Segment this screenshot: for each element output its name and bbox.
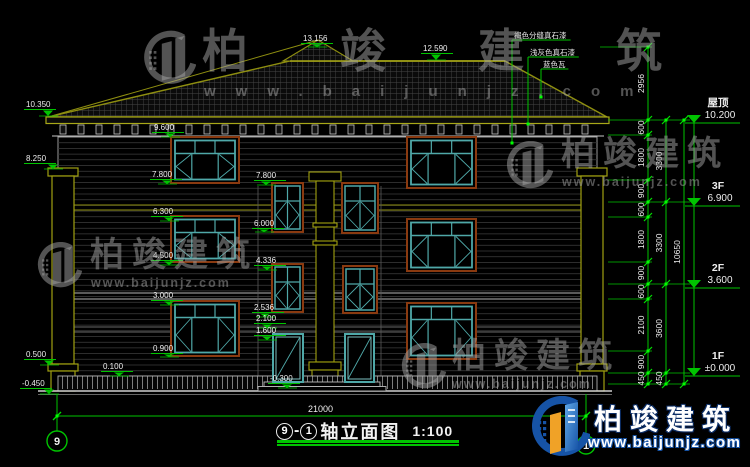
corner-logo-url: www.baijunjz.com <box>588 434 741 451</box>
entrance-door <box>345 334 374 382</box>
window <box>171 301 239 356</box>
dentil <box>132 125 138 134</box>
elevation-value: 0.900 <box>153 344 174 353</box>
window <box>272 183 303 232</box>
dentil <box>456 125 462 134</box>
dentil <box>258 125 264 134</box>
dentil <box>510 125 516 134</box>
dim-grip-icon <box>647 179 650 182</box>
elevation-value: 12.590 <box>423 44 448 53</box>
leader-dot-icon <box>527 123 530 126</box>
dentil <box>114 125 120 134</box>
flag-triangle-icon <box>687 368 701 376</box>
dim-value: 1800 <box>636 230 646 249</box>
dim-value: 450 <box>636 371 646 385</box>
dentil <box>312 125 318 134</box>
elevation-value: 7.800 <box>256 171 277 180</box>
dentil <box>330 125 336 134</box>
elevation-value: -0.450 <box>22 379 45 388</box>
elevation-value: 6.000 <box>254 219 275 228</box>
dentil <box>420 125 426 134</box>
level-flag: 1F±0.000 <box>685 350 740 376</box>
dim-value: 450 <box>654 371 664 385</box>
elevation-value: 9.600 <box>154 123 175 132</box>
window-surround <box>171 301 239 356</box>
dim-grip-icon <box>647 283 650 286</box>
window-surround <box>407 219 476 271</box>
dentil <box>96 125 102 134</box>
floor-label: 屋顶 <box>708 97 729 109</box>
elevation-value: 1.600 <box>256 326 277 335</box>
title-underline-2 <box>277 444 459 446</box>
elevation-marker: 12.590 <box>421 44 453 60</box>
floor-label: 2F <box>712 262 725 274</box>
dim-grip-icon <box>665 119 668 122</box>
elevation-value: 2.536 <box>254 303 275 312</box>
dim-value: 2956 <box>636 74 646 93</box>
level-flag: 2F3.600 <box>685 262 740 288</box>
elevation-value: 6.300 <box>153 207 174 216</box>
axis-circle-start: 9 <box>276 423 293 440</box>
marker-triangle-icon <box>43 111 53 117</box>
dim-grip-icon <box>665 283 668 286</box>
dentil <box>204 125 210 134</box>
window <box>272 264 303 312</box>
elevation-marker: 13.156 <box>301 34 333 47</box>
elevation-marker: 9.600 <box>152 123 184 137</box>
dentil <box>384 125 390 134</box>
dim-grip-icon <box>647 298 650 301</box>
elevation-marker: 8.250 <box>24 154 63 169</box>
dentil <box>564 125 570 134</box>
dentil <box>222 125 228 134</box>
elevation-value: 4.336 <box>256 256 277 265</box>
corner-logo: 柏竣建筑 www.baijunjz.com <box>530 394 750 464</box>
dim-grip-icon <box>683 383 686 386</box>
roof <box>48 40 607 117</box>
dim-value: 1800 <box>636 148 646 167</box>
axis-circle-end: 1 <box>300 423 317 440</box>
level-flag: 屋顶10.200 <box>685 97 740 123</box>
elevation-value: 13.156 <box>303 34 328 43</box>
window <box>342 183 378 233</box>
dentil <box>438 125 444 134</box>
dim-value: 900 <box>636 184 646 198</box>
dim-grip-icon <box>647 372 650 375</box>
leader-dot-icon <box>511 142 514 145</box>
window <box>171 137 239 183</box>
window-surround <box>171 137 239 183</box>
elevation-value: 10.350 <box>26 100 51 109</box>
elevation-value: 2.100 <box>256 314 277 323</box>
dim-grip-icon <box>665 372 668 375</box>
axis-number: 9 <box>54 436 60 448</box>
level-value: ±0.000 <box>705 363 736 374</box>
baijun-logo-icon <box>530 396 590 462</box>
dentil <box>276 125 282 134</box>
dim-value: 3300 <box>654 151 664 170</box>
elevation-value: 3.000 <box>153 291 174 300</box>
elevation-value: 0.100 <box>103 362 124 371</box>
dim-grip-icon <box>647 46 650 49</box>
dentil <box>240 125 246 134</box>
dentil <box>294 125 300 134</box>
dim-grip-icon <box>647 383 650 386</box>
dentil <box>348 125 354 134</box>
dim-value: 900 <box>636 266 646 280</box>
dentil <box>60 125 66 134</box>
dentil <box>546 125 552 134</box>
elevation-value: 7.800 <box>152 170 173 179</box>
dentil <box>402 125 408 134</box>
dentil <box>78 125 84 134</box>
level-value: 3.600 <box>707 275 732 286</box>
elevation-value: 8.250 <box>26 154 47 163</box>
dentil <box>186 125 192 134</box>
axis-bubble: 9 <box>47 431 67 451</box>
dim-grip-icon <box>647 119 650 122</box>
marker-triangle-icon <box>431 55 441 61</box>
dim-value: 10650 <box>672 240 682 264</box>
elevation-value: 0.500 <box>26 350 47 359</box>
elevation-marker: 10.350 <box>24 100 58 116</box>
window <box>407 219 476 271</box>
corner-logo-brand: 柏竣建筑 <box>594 398 738 438</box>
dim-grip-icon <box>647 261 650 264</box>
dim-value: 3300 <box>654 233 664 252</box>
floor-label: 1F <box>712 350 725 362</box>
dim-grip-icon <box>665 201 668 204</box>
dim-grip-icon <box>647 201 650 204</box>
material-text: 浅灰色真石漆 <box>530 47 575 57</box>
dim-grip-icon <box>665 383 668 386</box>
drawing-scale: 1:100 <box>412 423 453 439</box>
level-value: 6.900 <box>707 193 732 204</box>
elevation-value: 4.500 <box>153 251 174 260</box>
drawing-canvas: 13.15612.59010.3509.6008.2507.8007.8006.… <box>0 0 750 467</box>
window <box>407 137 476 188</box>
dim-value: 2100 <box>636 315 646 334</box>
leader-dot-icon <box>540 96 543 99</box>
level-flag: 3F6.900 <box>685 180 740 206</box>
dentil <box>492 125 498 134</box>
window-surround <box>407 137 476 188</box>
eave-cornice <box>46 117 609 136</box>
level-value: 10.200 <box>705 110 736 121</box>
title-underline <box>277 440 459 443</box>
dentil <box>366 125 372 134</box>
dim-value: 600 <box>636 120 646 134</box>
dim-grip-icon <box>647 216 650 219</box>
dim-value: 600 <box>636 202 646 216</box>
total-width-value: 21000 <box>308 404 333 414</box>
dentil <box>528 125 534 134</box>
window-surround <box>171 216 239 262</box>
material-text: 褐色分缝真石漆 <box>514 30 567 40</box>
window <box>171 216 239 262</box>
dentil <box>474 125 480 134</box>
floor-label: 3F <box>712 180 725 192</box>
dim-grip-icon <box>683 119 686 122</box>
marker-triangle-icon <box>44 390 54 395</box>
dim-value: 600 <box>636 284 646 298</box>
title-dash: - <box>294 422 299 440</box>
material-text: 蓝色瓦 <box>543 59 566 69</box>
dim-grip-icon <box>647 350 650 353</box>
flag-triangle-icon <box>687 115 701 123</box>
dim-value: 3600 <box>654 319 664 338</box>
dim-grip-icon <box>56 415 59 418</box>
dentil <box>582 125 588 134</box>
window <box>407 303 476 359</box>
dim-grip-icon <box>647 134 650 137</box>
dim-value: 900 <box>636 355 646 369</box>
window <box>343 266 377 313</box>
elevation-value: -0.300 <box>270 374 293 383</box>
